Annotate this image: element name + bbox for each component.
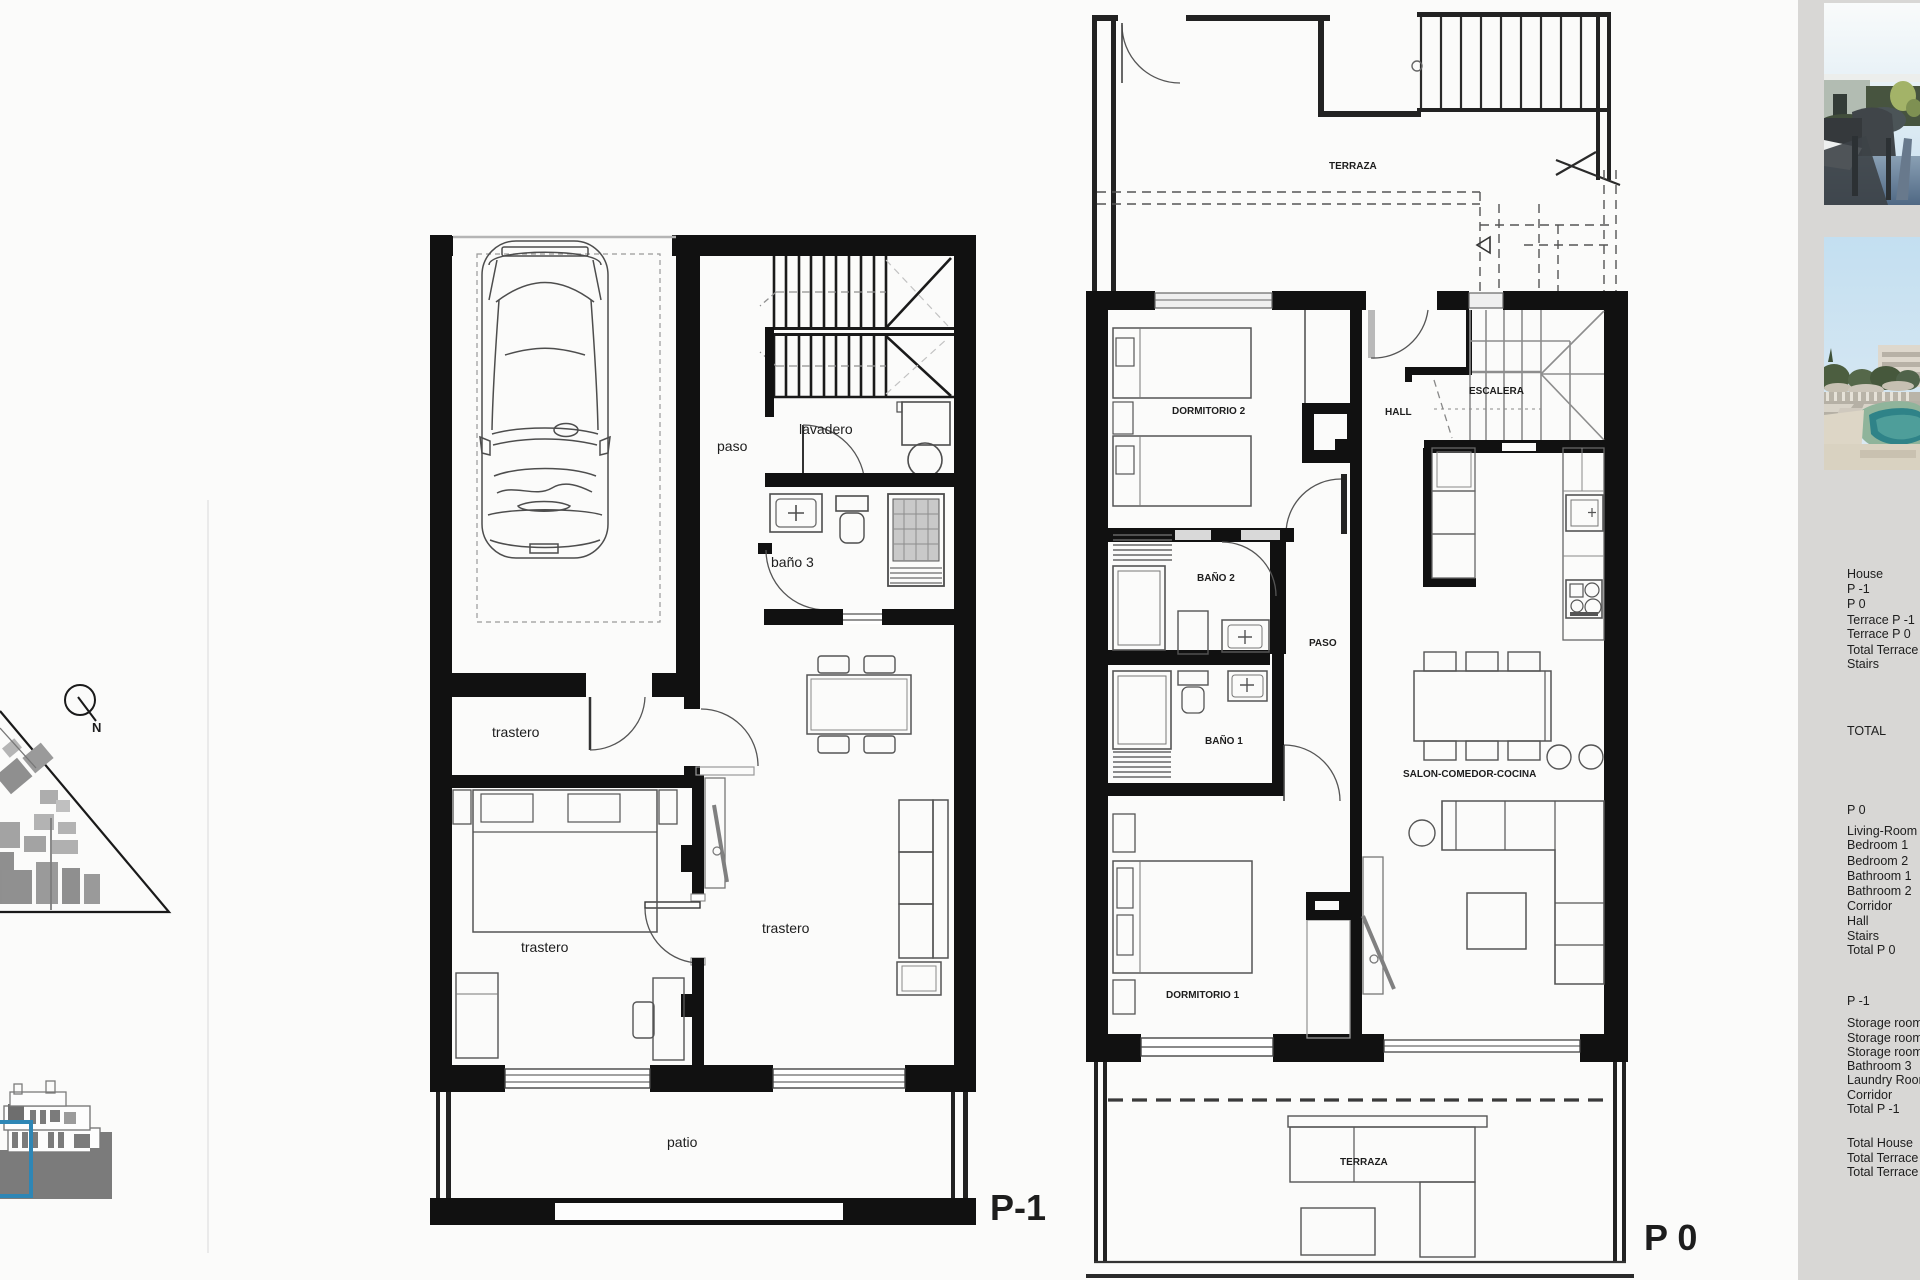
svg-text:TOTAL: TOTAL [1847,724,1886,738]
svg-text:Storage room 1: Storage room 1 [1847,1016,1920,1030]
svg-text:P 0: P 0 [1644,1217,1697,1258]
svg-text:Stairs: Stairs [1847,657,1879,671]
svg-text:Total Terrace: Total Terrace [1847,1165,1918,1179]
svg-text:Storage room 2: Storage room 2 [1847,1031,1920,1045]
svg-text:Corridor: Corridor [1847,1088,1892,1102]
svg-text:TERRAZA: TERRAZA [1329,161,1377,172]
svg-text:DORMITORIO 1: DORMITORIO 1 [1166,990,1240,1001]
svg-text:HALL: HALL [1385,407,1412,418]
svg-text:P -1: P -1 [1847,582,1870,596]
svg-text:DORMITORIO 2: DORMITORIO 2 [1172,406,1246,417]
svg-text:House: House [1847,567,1883,581]
svg-text:paso: paso [717,438,748,454]
svg-text:Bedroom 1: Bedroom 1 [1847,838,1908,852]
svg-text:lavadero: lavadero [799,421,853,437]
svg-text:trastero: trastero [762,920,810,936]
svg-text:Bedroom 2: Bedroom 2 [1847,854,1908,868]
svg-text:Total Terrace: Total Terrace [1847,1151,1918,1165]
svg-text:TERRAZA: TERRAZA [1340,1157,1388,1168]
svg-text:Stairs: Stairs [1847,929,1879,943]
svg-text:baño 3: baño 3 [771,554,814,570]
svg-text:Terrace P 0: Terrace P 0 [1847,627,1911,641]
svg-text:P 0: P 0 [1847,803,1866,817]
svg-text:ESCALERA: ESCALERA [1469,386,1524,397]
svg-text:P-1: P-1 [990,1187,1046,1228]
svg-text:BAÑO 2: BAÑO 2 [1197,571,1235,584]
svg-text:Bathroom 1: Bathroom 1 [1847,869,1912,883]
svg-text:Bathroom 2: Bathroom 2 [1847,884,1912,898]
svg-text:Hall: Hall [1847,914,1869,928]
svg-text:N: N [92,720,101,735]
svg-text:PASO: PASO [1309,638,1337,649]
svg-text:Corridor: Corridor [1847,899,1892,913]
svg-text:Total House: Total House [1847,1136,1913,1150]
svg-text:BAÑO 1: BAÑO 1 [1205,734,1243,747]
svg-text:Total P 0: Total P 0 [1847,943,1895,957]
svg-text:SALON-COMEDOR-COCINA: SALON-COMEDOR-COCINA [1403,769,1536,780]
svg-text:Bathroom 3: Bathroom 3 [1847,1059,1912,1073]
svg-text:Living-Room: Living-Room [1847,824,1917,838]
svg-text:P 0: P 0 [1847,597,1866,611]
svg-text:Total Terrace: Total Terrace [1847,643,1918,657]
svg-text:Total P -1: Total P -1 [1847,1102,1900,1116]
svg-text:Storage room 3: Storage room 3 [1847,1045,1920,1059]
svg-text:patio: patio [667,1134,698,1150]
svg-text:Terrace P -1: Terrace P -1 [1847,613,1915,627]
svg-text:trastero: trastero [521,939,569,955]
svg-text:Laundry Room: Laundry Room [1847,1073,1920,1087]
svg-text:P -1: P -1 [1847,994,1870,1008]
svg-text:trastero: trastero [492,724,540,740]
